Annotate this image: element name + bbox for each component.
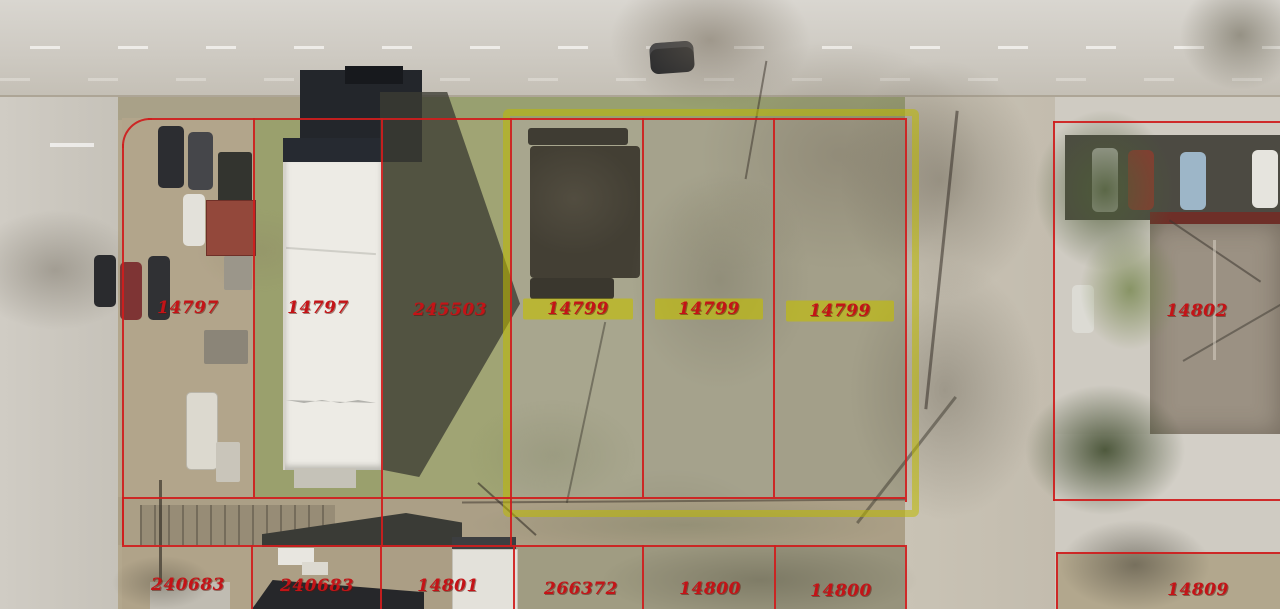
parcel-boundary <box>380 545 382 609</box>
warehouse-roof-vent <box>345 66 403 84</box>
vehicle-white-car <box>1252 150 1278 208</box>
parcel-label-14799-c: 14799 <box>809 301 871 321</box>
parcel-label-240683-b: 240683 <box>280 576 354 596</box>
evergreen-tree <box>1025 385 1185 515</box>
loading-dock <box>294 468 356 488</box>
parcel-label-245503: 245503 <box>413 300 487 320</box>
parcel-boundary <box>642 118 644 497</box>
aerial-parcel-map: 14797 14797 245503 14799 14799 14799 148… <box>0 0 1280 609</box>
parcel-label-14802: 14802 <box>1166 301 1228 321</box>
white-shed <box>302 562 328 575</box>
parcel-label-14801: 14801 <box>417 576 479 596</box>
parcel-boundary <box>510 118 512 545</box>
parcel-boundary <box>1056 552 1280 554</box>
evergreen-tree <box>1080 230 1180 350</box>
parcel-label-14797-b: 14797 <box>287 298 349 318</box>
stop-bar-marking <box>50 143 94 147</box>
warehouse-white-roof <box>283 138 380 164</box>
yard-junk <box>224 256 252 290</box>
parcel-label-14800-b: 14800 <box>810 581 872 601</box>
parcel-boundary <box>1053 121 1280 123</box>
red-roof-shed <box>206 200 256 256</box>
parcel-boundary <box>122 144 124 545</box>
road-left <box>0 97 118 609</box>
parcel-boundary <box>251 545 253 609</box>
white-building <box>452 537 516 549</box>
parcel-boundary <box>381 118 383 545</box>
parcel-boundary <box>905 545 907 609</box>
vehicle-white-van <box>183 194 205 246</box>
trailer <box>204 330 248 364</box>
vehicle-blue-car <box>1180 152 1206 210</box>
vehicle <box>188 132 213 190</box>
parcel-boundary <box>513 545 515 609</box>
parcel-label-266372: 266372 <box>544 579 618 599</box>
parcel-boundary <box>253 118 255 497</box>
parcel-boundary <box>122 497 905 499</box>
parcel-label-14800-a: 14800 <box>679 579 741 599</box>
yard-junk <box>216 442 240 482</box>
tree-shadow <box>0 210 140 330</box>
vehicle-white-rv <box>186 392 218 470</box>
parcel-label-14799-b: 14799 <box>678 299 740 319</box>
parcel-boundary <box>905 118 907 502</box>
parcel-label-14809: 14809 <box>1167 580 1229 600</box>
roof-ridge <box>1213 240 1216 360</box>
parcel-boundary <box>1056 552 1058 609</box>
vehicle <box>94 255 116 307</box>
parcel-boundary <box>1053 499 1280 501</box>
parcel-boundary <box>148 118 905 120</box>
parcel-label-240683-a: 240683 <box>151 575 225 595</box>
vehicle <box>158 126 184 188</box>
parcel-boundary <box>773 118 775 497</box>
parcel-boundary <box>1053 121 1055 501</box>
parcel-boundary <box>122 497 124 545</box>
parcel-boundary <box>642 545 644 609</box>
parcel-boundary <box>774 545 776 609</box>
parcel-label-14799-a: 14799 <box>547 299 609 319</box>
parcel-label-14797-a: 14797 <box>157 298 219 318</box>
